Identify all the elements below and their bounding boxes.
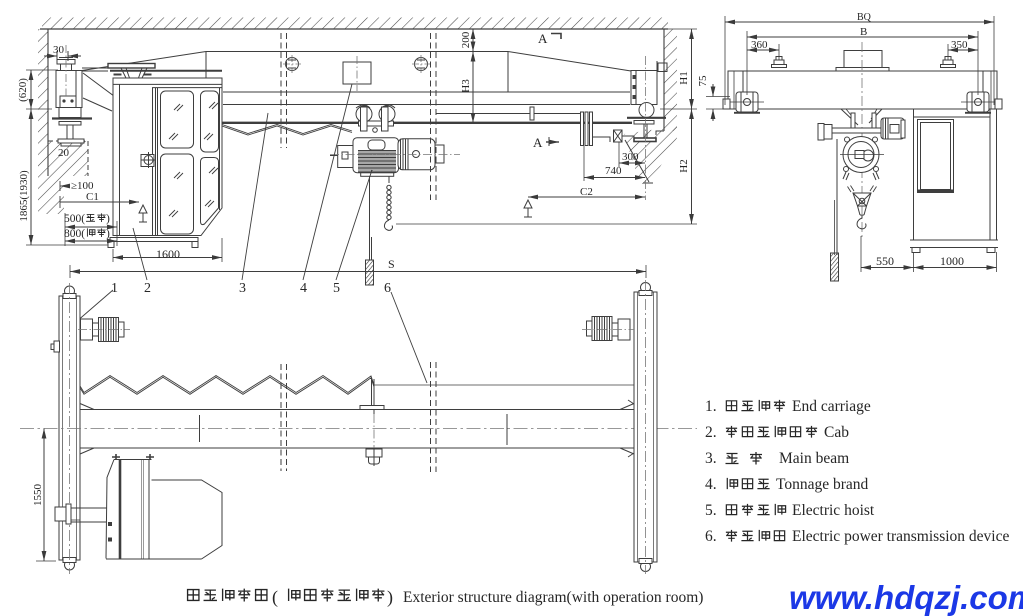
svg-text:200: 200	[460, 31, 472, 48]
svg-text:Tonnage brand: Tonnage brand	[776, 476, 869, 493]
svg-text:3.: 3.	[705, 450, 717, 467]
svg-text:H2: H2	[678, 159, 690, 172]
svg-text:4.: 4.	[705, 476, 717, 493]
svg-text:30: 30	[53, 44, 65, 56]
svg-text:75: 75	[697, 75, 709, 87]
svg-text:4: 4	[300, 281, 307, 296]
svg-text:www.hdqzj.com: www.hdqzj.com	[789, 579, 1023, 616]
svg-text:C2: C2	[580, 186, 593, 198]
svg-text:End carriage: End carriage	[792, 398, 871, 415]
svg-text:1600: 1600	[156, 247, 180, 261]
svg-text:A: A	[533, 135, 543, 150]
svg-text:): )	[106, 213, 110, 225]
svg-text:1.: 1.	[705, 398, 717, 415]
svg-text:Electric hoist: Electric hoist	[792, 502, 875, 519]
svg-text:1865(1930): 1865(1930)	[18, 170, 30, 222]
svg-text:360: 360	[751, 39, 768, 51]
svg-text:(: (	[272, 587, 278, 608]
svg-text:550: 550	[876, 254, 894, 268]
svg-text:H3: H3	[460, 79, 472, 93]
svg-text:500(: 500(	[64, 213, 85, 225]
svg-text:740: 740	[605, 165, 622, 177]
svg-text:(620): (620)	[17, 78, 29, 102]
svg-text:A: A	[538, 31, 548, 46]
svg-text:6.: 6.	[705, 528, 717, 545]
svg-text:2.: 2.	[705, 424, 717, 441]
svg-text:1: 1	[111, 281, 118, 296]
svg-text:): )	[106, 228, 110, 240]
svg-text:Electric power transmission de: Electric power transmission device	[792, 528, 1009, 545]
svg-text:800(: 800(	[64, 228, 85, 240]
svg-text:): )	[387, 587, 393, 608]
svg-text:5.: 5.	[705, 502, 717, 519]
svg-text:S: S	[388, 257, 395, 271]
svg-text:Exterior structure diagram(wit: Exterior structure diagram(with operatio…	[403, 589, 703, 606]
svg-text:H1: H1	[678, 71, 690, 84]
svg-text:350: 350	[951, 39, 968, 51]
svg-text:6: 6	[384, 281, 391, 296]
svg-text:C1: C1	[86, 191, 99, 203]
svg-text:1000: 1000	[940, 254, 964, 268]
svg-text:B: B	[860, 26, 867, 38]
svg-text:2: 2	[144, 281, 151, 296]
svg-text:Main beam: Main beam	[779, 450, 849, 467]
svg-text:Cab: Cab	[824, 424, 849, 441]
svg-text:300: 300	[622, 151, 639, 163]
svg-text:3: 3	[239, 281, 246, 296]
svg-text:5: 5	[333, 281, 340, 296]
svg-text:20: 20	[58, 147, 70, 159]
svg-text:BQ: BQ	[857, 12, 872, 23]
svg-text:1550: 1550	[32, 484, 44, 507]
